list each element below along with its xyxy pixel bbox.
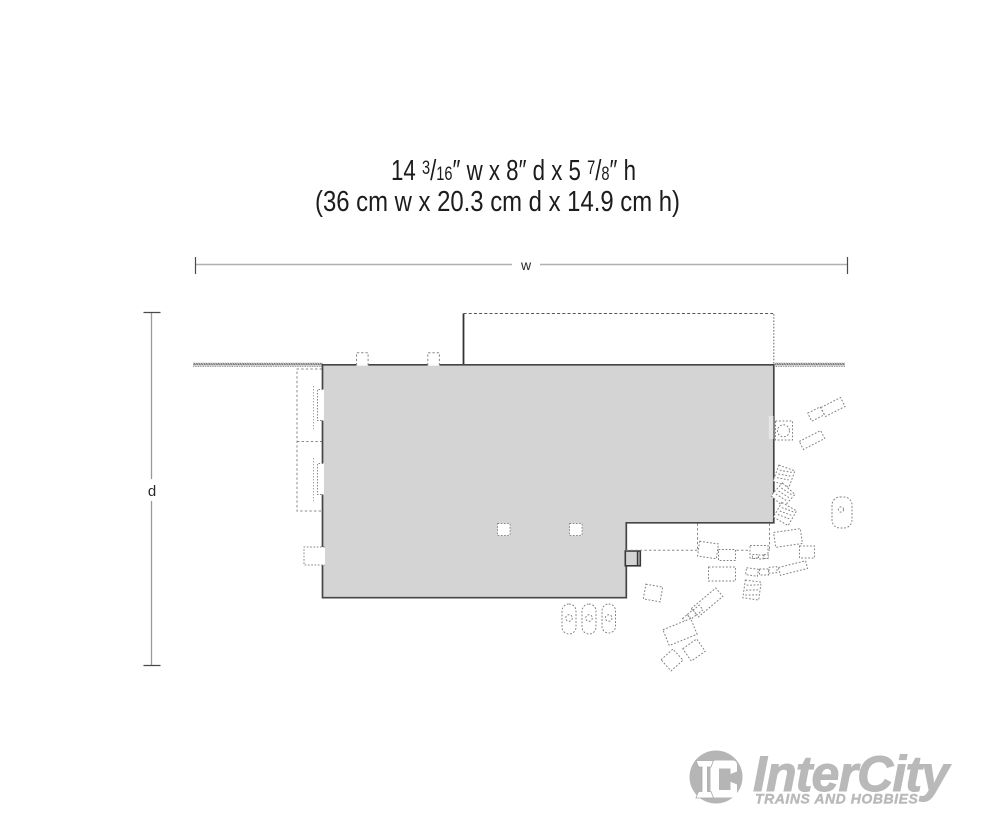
svg-text:(36 cm w x 20.3 cm d x 14.9 cm: (36 cm w x 20.3 cm d x 14.9 cm h) xyxy=(315,186,680,218)
svg-text:TRAINS AND HOBBIES: TRAINS AND HOBBIES xyxy=(755,791,918,807)
svg-text:w: w xyxy=(520,257,532,273)
svg-text:14 3/16″ w x 8″ d x 5 7/8″ h: 14 3/16″ w x 8″ d x 5 7/8″ h xyxy=(391,155,636,187)
svg-text:d: d xyxy=(148,483,156,500)
